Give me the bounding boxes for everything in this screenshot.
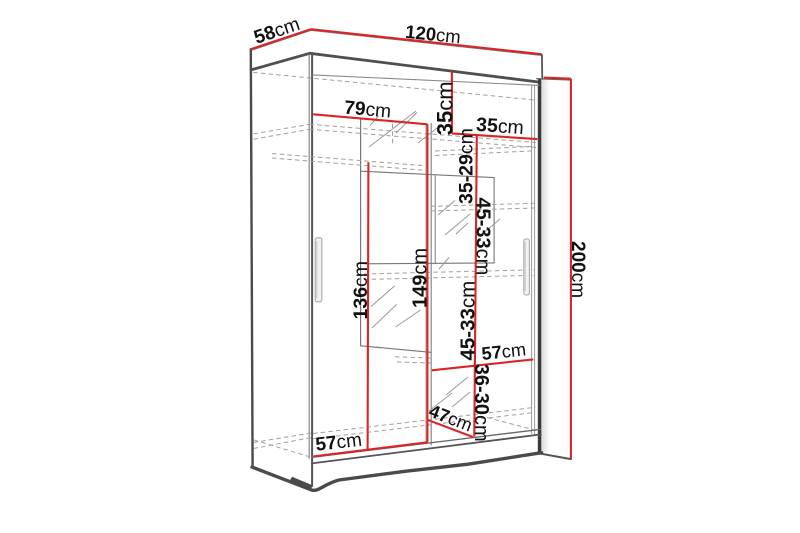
svg-text:45-33cm: 45-33cm <box>457 281 480 361</box>
svg-text:136cm: 136cm <box>350 261 372 320</box>
svg-text:36-30cm: 36-30cm <box>470 364 492 442</box>
svg-text:149cm: 149cm <box>410 248 432 308</box>
svg-text:35-29cm: 35-29cm <box>455 128 477 204</box>
svg-text:45-33cm: 45-33cm <box>471 198 493 276</box>
svg-text:35cm: 35cm <box>475 114 524 139</box>
svg-text:35cm: 35cm <box>432 81 457 135</box>
svg-text:79cm: 79cm <box>343 98 392 123</box>
svg-text:200cm: 200cm <box>567 241 588 298</box>
